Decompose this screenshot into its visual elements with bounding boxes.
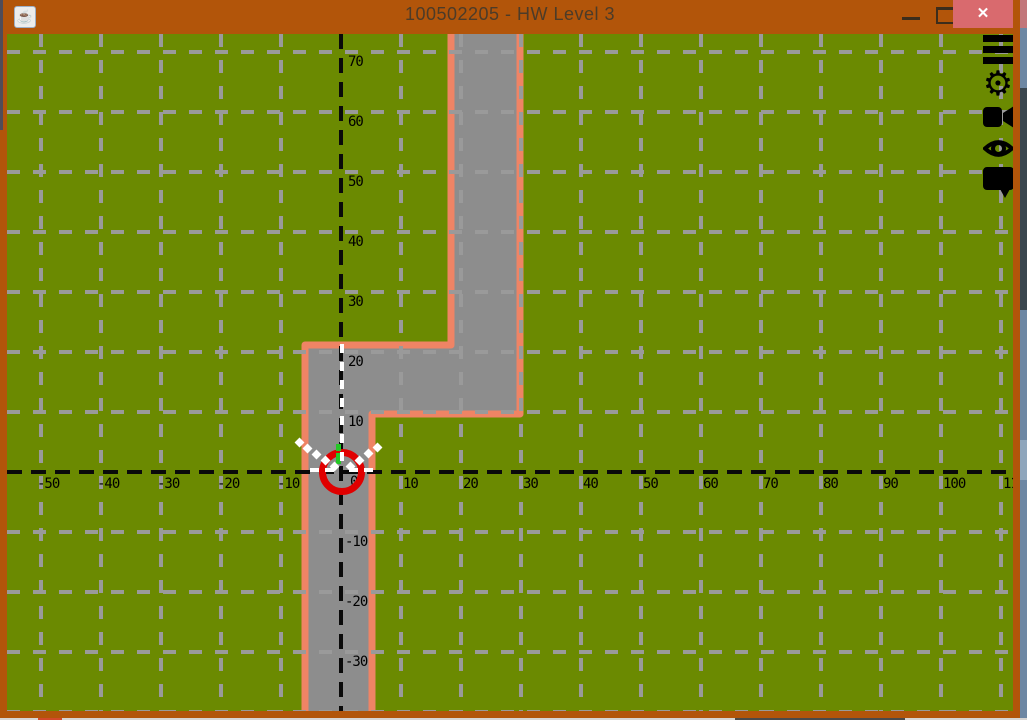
- y-tick-label: 10: [348, 414, 363, 430]
- menu-button[interactable]: [982, 35, 1013, 64]
- desktop-left-strip: [0, 0, 3, 130]
- road: [305, 34, 520, 711]
- app-window: ☕ 100502205 - HW Level 3 ✕ -50-40-30-20-…: [0, 0, 1020, 718]
- view-toolbar: ⚙: [982, 35, 1013, 199]
- speech-bubble-icon: [983, 167, 1014, 199]
- sensor-ray-dash: [340, 452, 344, 461]
- sensor-ray-dash: [340, 398, 344, 407]
- x-tick-label: -50: [37, 476, 59, 492]
- desktop-right-strip-light: [1020, 440, 1027, 480]
- y-tick-label: 20: [348, 354, 363, 370]
- x-tick-label: 70: [763, 476, 778, 492]
- sensor-ray-dash: [340, 344, 344, 353]
- x-tick-label: 80: [823, 476, 838, 492]
- video-camera-icon: [983, 104, 1014, 130]
- x-tick-label: -40: [97, 476, 119, 492]
- sensor-ray-dash: [340, 362, 344, 371]
- x-tick-label: 40: [583, 476, 598, 492]
- x-tick-label: -20: [217, 476, 239, 492]
- sensor-ray-dash: [349, 468, 358, 472]
- sensor-ray-dash: [310, 468, 319, 472]
- minimize-button[interactable]: [894, 0, 930, 28]
- minimize-icon: [902, 17, 920, 20]
- window-title: 100502205 - HW Level 3: [0, 4, 1020, 25]
- x-tick-label: -30: [157, 476, 179, 492]
- camera-button[interactable]: [982, 104, 1013, 130]
- x-tick-label: -10: [277, 476, 299, 492]
- sensor-ray-dash: [364, 468, 373, 472]
- desktop-right-strip-close-edge: [1020, 0, 1027, 28]
- sensor-ray-dash: [340, 380, 344, 389]
- x-tick-label: 50: [643, 476, 658, 492]
- x-tick-label: 20: [463, 476, 478, 492]
- desktop-right-strip-dark: [1020, 88, 1027, 310]
- x-tick-label: 100: [943, 476, 965, 492]
- y-tick-label: 40: [348, 234, 363, 250]
- y-tick-label: 60: [348, 114, 363, 130]
- sensor-ray-dash: [340, 434, 344, 443]
- x-tick-label: 60: [703, 476, 718, 492]
- y-tick-label: 50: [348, 174, 363, 190]
- close-button[interactable]: ✕: [953, 0, 1013, 28]
- y-tick-label: -20: [345, 594, 367, 610]
- y-tick-label: -10: [345, 534, 367, 550]
- x-tick-label: 10: [403, 476, 418, 492]
- eye-icon: [983, 135, 1014, 162]
- world-map-canvas: [7, 34, 1013, 711]
- titlebar[interactable]: ☕ 100502205 - HW Level 3 ✕: [0, 0, 1020, 34]
- sensor-ray-dash: [340, 416, 344, 425]
- sensor-ray-dash: [325, 468, 334, 472]
- x-tick-label: 30: [523, 476, 538, 492]
- settings-button[interactable]: ⚙: [982, 69, 1013, 99]
- x-tick-label: 90: [883, 476, 898, 492]
- desktop-screen: ☕ 100502205 - HW Level 3 ✕ -50-40-30-20-…: [0, 0, 1027, 720]
- robot-heading-mark: [336, 444, 341, 451]
- x-tick-label: 110: [1003, 476, 1013, 492]
- visibility-button[interactable]: [982, 135, 1013, 162]
- y-tick-label: 30: [348, 294, 363, 310]
- chat-button[interactable]: [982, 167, 1013, 199]
- menu-icon: [983, 35, 1014, 64]
- simulation-viewport[interactable]: -50-40-30-20-101020304050607080901001107…: [7, 34, 1013, 711]
- y-tick-label: 70: [348, 54, 363, 70]
- y-tick-label: -30: [345, 654, 367, 670]
- gear-icon: ⚙: [983, 69, 1013, 99]
